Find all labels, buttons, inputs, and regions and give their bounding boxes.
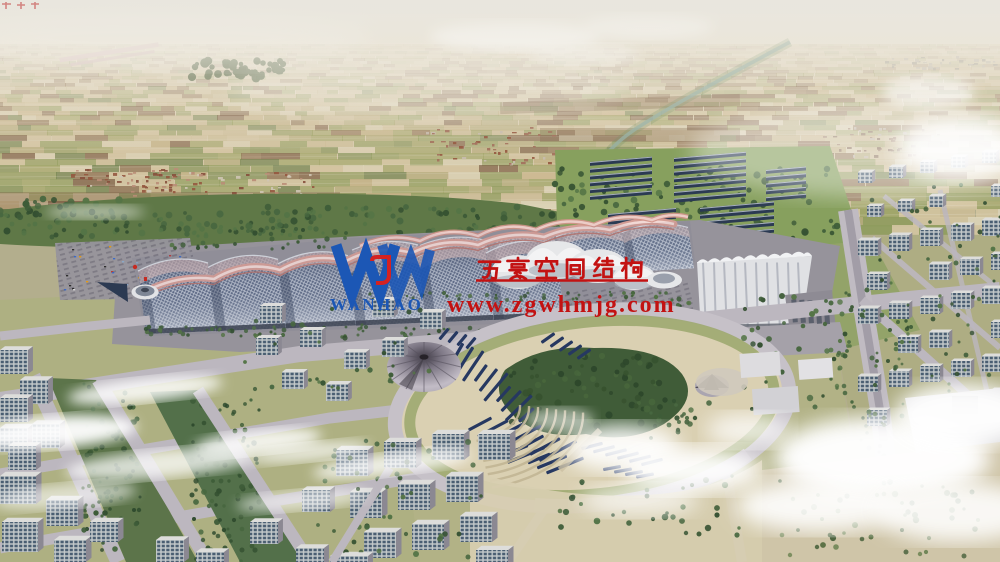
svg-text:WANHAO: WANHAO — [330, 295, 423, 314]
svg-text:www.zgwhmjg.com: www.zgwhmjg.com — [447, 292, 676, 318]
